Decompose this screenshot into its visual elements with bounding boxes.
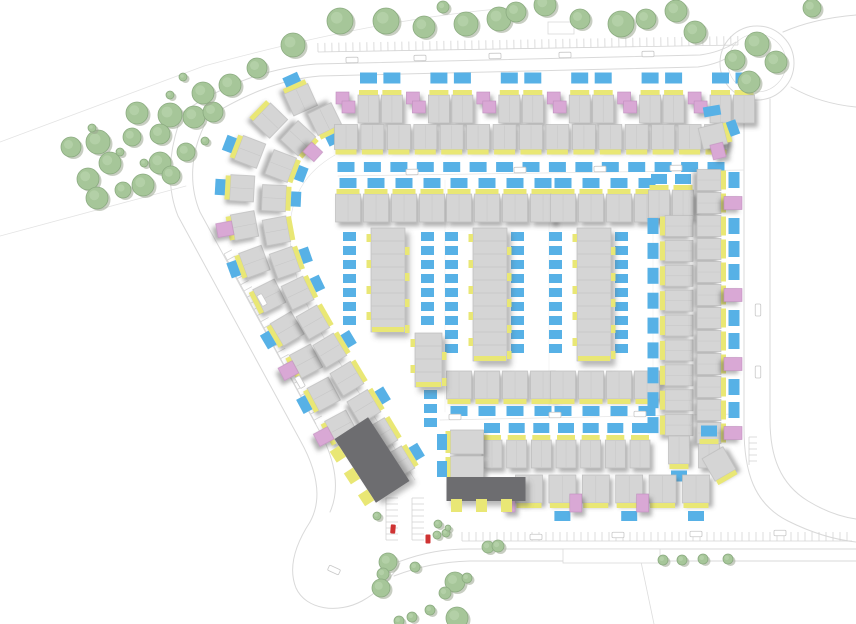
tree	[132, 174, 157, 198]
parking-space	[648, 318, 659, 334]
tree-highlight	[195, 85, 205, 95]
garden-strip	[521, 150, 542, 155]
tree	[407, 612, 420, 624]
east-outer-col-unit	[697, 377, 740, 398]
parking-space	[454, 73, 471, 84]
parking-space	[390, 162, 407, 172]
car	[449, 414, 461, 420]
tree-highlight	[441, 589, 446, 594]
south-mid-row-unit	[556, 423, 576, 468]
tree-highlight	[375, 582, 383, 590]
east-inner-col-unit	[648, 390, 694, 411]
entry-strip	[411, 365, 416, 373]
east-inner-col-unit	[648, 340, 694, 361]
garden-strip	[721, 217, 726, 236]
parking-space	[343, 232, 356, 241]
parking-space	[509, 423, 525, 433]
garden-strip	[608, 399, 631, 404]
garden-strip	[721, 309, 726, 328]
east-inner-col-unit	[648, 216, 694, 237]
maisonette-block	[637, 494, 649, 512]
entry-strip	[405, 299, 410, 307]
parking-space	[648, 417, 659, 433]
maisonette-block	[570, 494, 582, 512]
parking-space	[343, 316, 356, 325]
parking-space	[511, 302, 524, 311]
entry-strip	[367, 286, 372, 294]
tree	[61, 137, 84, 159]
parking-space	[421, 288, 434, 297]
arc-outer-row-unit	[220, 130, 266, 168]
entry-strip	[573, 312, 578, 320]
top-row-b-unit	[387, 125, 410, 173]
parking-space	[396, 178, 413, 188]
maisonette-block	[412, 101, 425, 113]
parking-space	[729, 310, 740, 326]
car	[549, 412, 561, 418]
tree-highlight	[152, 155, 162, 165]
parking-space	[484, 423, 500, 433]
tree	[123, 128, 144, 148]
parking-space	[445, 302, 458, 311]
garden-strip	[600, 150, 621, 155]
parking-space	[470, 162, 487, 172]
parking-space	[424, 390, 437, 399]
east-inner-col-unit	[648, 265, 694, 286]
house-block	[451, 456, 484, 478]
parking-space	[628, 162, 645, 172]
parking-space	[681, 162, 698, 172]
parking-space	[611, 178, 628, 188]
site-plan-svg	[0, 0, 856, 624]
top-row-a-unit	[477, 92, 496, 113]
tree-highlight	[167, 92, 171, 96]
top-row-b-unit	[625, 125, 648, 173]
tree	[434, 520, 445, 530]
top-row-b-unit	[440, 125, 463, 173]
parking-space	[343, 274, 356, 283]
parking-space	[549, 302, 562, 311]
top-row-a-unit	[381, 73, 402, 124]
parking-space	[507, 406, 524, 416]
arc-inner-row-unit	[269, 241, 314, 278]
east-outer-col-unit	[697, 193, 742, 214]
parking-bay-line	[261, 317, 269, 321]
garden-strip	[721, 263, 726, 282]
entry-strip	[367, 312, 372, 320]
parking-space	[621, 511, 637, 521]
south-mid-row-unit	[507, 423, 527, 468]
arc-outer-row-unit	[215, 211, 259, 244]
parking-space	[445, 316, 458, 325]
parking-space	[632, 423, 648, 433]
garden-strip	[650, 503, 675, 508]
parking-space	[648, 367, 659, 383]
entry-strip	[573, 286, 578, 294]
garden-strip	[382, 90, 401, 95]
garden-strip	[721, 401, 726, 420]
parking-space	[501, 73, 518, 84]
parking-space	[535, 178, 552, 188]
tree-highlight	[768, 54, 778, 64]
tree-highlight	[202, 138, 206, 142]
tree	[126, 102, 151, 126]
terrace-body	[415, 333, 442, 387]
parking-space	[533, 423, 549, 433]
entry-strip	[367, 260, 372, 268]
garden-strip	[500, 90, 519, 95]
parking-space	[615, 274, 628, 283]
terrace-body	[473, 228, 507, 361]
tree	[115, 182, 134, 200]
top-row-b-unit	[335, 125, 358, 173]
garden-strip	[532, 435, 550, 440]
parking-bay-line	[224, 250, 232, 254]
tree	[684, 21, 709, 45]
garden-strip	[721, 171, 726, 190]
terrace-block	[573, 228, 616, 361]
entry-strip	[469, 260, 474, 268]
garden-strip	[523, 90, 542, 95]
east-outer-col-unit	[697, 400, 740, 421]
tree	[658, 555, 671, 567]
garden-strip	[532, 189, 555, 194]
parking-space	[445, 246, 458, 255]
site-plan-canvas	[0, 0, 856, 624]
parking-space	[445, 232, 458, 241]
top-row-a-unit	[428, 73, 449, 124]
entry-strip	[573, 338, 578, 346]
tree-highlight	[117, 184, 124, 191]
top-row-b-unit	[414, 125, 437, 173]
tree-highlight	[117, 149, 121, 153]
parking-space	[571, 73, 588, 84]
tree-highlight	[153, 127, 162, 136]
parking-space	[595, 73, 612, 84]
tree-highlight	[396, 618, 401, 623]
parking-space	[343, 288, 356, 297]
garden-strip	[660, 416, 665, 435]
parking-space	[651, 174, 667, 184]
east-outer-col-unit	[697, 354, 742, 375]
tree-highlight	[285, 37, 296, 48]
parking-space	[511, 274, 524, 283]
tree	[372, 579, 393, 599]
entry-strip	[507, 273, 512, 281]
tree	[446, 607, 471, 624]
east-outer-col-unit	[697, 331, 740, 352]
east-top-pair-unit	[649, 174, 670, 218]
tree	[247, 58, 270, 80]
parking-space	[615, 344, 628, 353]
tree	[88, 124, 99, 134]
garden-strip	[552, 399, 575, 404]
parking-space	[451, 178, 468, 188]
entry-strip	[442, 378, 447, 386]
east-inner-col-unit	[648, 315, 694, 336]
parking-space	[615, 316, 628, 325]
entry-strip	[469, 338, 474, 346]
parking-space	[575, 162, 592, 172]
parking-space	[729, 402, 740, 418]
top-row-b-unit	[652, 125, 675, 173]
block3-bottom-row-unit	[579, 371, 604, 416]
tree-highlight	[741, 74, 751, 84]
garden-strip	[448, 399, 471, 404]
entry-strip	[611, 325, 616, 333]
house-unit	[437, 456, 484, 478]
tree-highlight	[89, 125, 93, 129]
tree-highlight	[409, 614, 414, 619]
garden-strip	[508, 435, 526, 440]
entry-strip	[451, 499, 462, 512]
parking-space	[688, 511, 704, 521]
car	[346, 57, 358, 63]
car	[755, 366, 761, 378]
tree-highlight	[186, 109, 196, 119]
parking-space	[343, 260, 356, 269]
tree-highlight	[412, 564, 417, 569]
garden-strip	[474, 356, 506, 361]
car	[774, 530, 786, 536]
parking-space	[524, 73, 541, 84]
garden-strip	[552, 189, 575, 194]
tree	[765, 51, 790, 75]
tree-highlight	[64, 140, 73, 149]
road-edge	[640, 557, 654, 624]
parking-space	[445, 288, 458, 297]
tree	[177, 143, 198, 163]
tree	[373, 512, 384, 522]
parking-space	[511, 246, 524, 255]
tree-highlight	[374, 513, 378, 517]
tree-highlight	[206, 105, 215, 114]
parking-space	[642, 73, 659, 84]
housing-layer	[214, 70, 754, 521]
block3-top-row-unit	[607, 178, 632, 222]
tree	[373, 8, 402, 36]
south-mid-row-unit	[605, 423, 625, 468]
south-mid-row-unit	[581, 423, 601, 468]
apartment-body	[447, 477, 526, 501]
garden-strip	[453, 90, 472, 95]
tree-highlight	[573, 12, 582, 21]
parking-space	[437, 461, 447, 477]
tree	[413, 16, 438, 40]
tree	[665, 0, 690, 24]
parking-space	[343, 246, 356, 255]
road-edge	[744, 99, 856, 542]
garden-strip	[700, 439, 719, 444]
tree-highlight	[509, 5, 518, 14]
road-edge	[783, 15, 856, 32]
tree	[179, 73, 190, 83]
garden-strip	[416, 382, 441, 387]
garden-strip	[674, 185, 693, 190]
arc-inner-row-unit	[261, 185, 301, 213]
parking-space	[648, 293, 659, 309]
parking-space	[648, 268, 659, 284]
garden-strip	[660, 391, 665, 410]
garden-strip	[517, 503, 542, 508]
tree-highlight	[80, 171, 90, 181]
car-red	[390, 524, 396, 533]
parking-space	[511, 330, 524, 339]
arc-outer-row-unit	[249, 99, 288, 138]
tree-highlight	[141, 160, 145, 164]
top-row-a-unit	[640, 73, 661, 124]
tree-highlight	[439, 3, 444, 8]
arc-inner-row-unit	[281, 270, 327, 310]
parking-space	[215, 179, 226, 196]
garden-strip	[547, 150, 568, 155]
garden-strip	[573, 150, 594, 155]
tree-highlight	[89, 190, 99, 200]
parking-space	[729, 218, 740, 234]
terrace-block	[367, 228, 410, 333]
top-row-b-unit	[467, 125, 490, 173]
east-top-pair-unit	[673, 174, 694, 218]
east-inner-col-unit	[648, 240, 694, 261]
tree	[698, 554, 711, 566]
tree-highlight	[806, 2, 814, 10]
tree-highlight	[679, 557, 684, 562]
parking-space	[340, 178, 357, 188]
entry-strip	[367, 234, 372, 242]
top-row-b-unit	[678, 125, 701, 173]
parking-space	[729, 241, 740, 257]
entry-strip	[507, 247, 512, 255]
garden-strip	[721, 332, 726, 351]
east-outer-col-unit	[697, 216, 740, 237]
maisonette-block	[724, 289, 742, 302]
parking-space	[360, 73, 377, 84]
parking-space	[549, 274, 562, 283]
car	[406, 169, 418, 175]
garden-strip	[580, 399, 603, 404]
car	[530, 534, 542, 540]
entry-strip	[442, 352, 447, 360]
parking-space	[549, 288, 562, 297]
parking-space	[615, 330, 628, 339]
top-row-a-unit	[499, 73, 520, 124]
parking-space	[583, 178, 600, 188]
tree-highlight	[135, 177, 145, 187]
garden-strip	[429, 90, 448, 95]
garden-strip	[415, 150, 436, 155]
entry-strip	[411, 339, 416, 347]
garden-strip	[660, 316, 665, 335]
block1-top-row-unit	[392, 178, 417, 222]
parking-space	[729, 172, 740, 188]
block2-bottom-row-unit	[447, 371, 472, 416]
east-inner-col-unit	[648, 290, 694, 311]
parking-space	[421, 260, 434, 269]
block3-top-row-unit	[579, 178, 604, 222]
road-edge	[791, 87, 856, 107]
entry-strip	[476, 499, 487, 512]
tree-highlight	[435, 521, 439, 525]
parking-space	[555, 178, 572, 188]
tree-highlight	[639, 12, 648, 21]
garden-strip	[660, 217, 665, 236]
tree	[454, 12, 481, 38]
garden-strip	[476, 399, 499, 404]
garden-strip	[721, 378, 726, 397]
garden-strip	[578, 356, 610, 361]
parking-space	[558, 423, 574, 433]
parking-space	[421, 246, 434, 255]
garden-strip	[483, 435, 501, 440]
tree-highlight	[129, 105, 139, 115]
terrace-block	[411, 333, 447, 387]
garden-strip	[631, 435, 649, 440]
parking-space	[479, 406, 496, 416]
garden-strip	[365, 189, 388, 194]
parking-space	[729, 379, 740, 395]
tree-highlight	[612, 15, 624, 27]
east-inner-col-unit	[648, 415, 694, 436]
east-outer-col-unit	[697, 170, 740, 191]
top-row-a-unit	[452, 73, 473, 124]
parking-space	[675, 174, 691, 184]
entry-strip	[405, 247, 410, 255]
top-row-a-unit	[618, 92, 637, 113]
tree-highlight	[126, 131, 134, 139]
block3-top-row-unit	[551, 178, 576, 222]
entry-strip	[469, 286, 474, 294]
block1-top-row-unit	[420, 178, 445, 222]
garden-strip	[684, 503, 709, 508]
south-mid-row-unit	[531, 423, 551, 468]
parking-space	[364, 162, 381, 172]
block2-bottom-row-unit	[503, 371, 528, 416]
parking-space	[445, 330, 458, 339]
tree	[677, 555, 690, 567]
tree-highlight	[728, 53, 737, 62]
parking-space	[507, 178, 524, 188]
tree-highlight	[434, 532, 438, 536]
parking-space	[729, 333, 740, 349]
maisonette-block	[342, 101, 355, 113]
tree	[86, 187, 111, 211]
tree-highlight	[668, 3, 678, 13]
tree-highlight	[180, 146, 188, 154]
parking-space	[655, 162, 672, 172]
parking-space	[607, 423, 623, 433]
parking-space	[445, 260, 458, 269]
parking-space	[430, 73, 447, 84]
entry-strip	[507, 351, 512, 359]
arc-outer-row-unit	[214, 174, 254, 202]
tree-highlight	[162, 107, 173, 118]
parking-space	[424, 418, 437, 427]
parking-space	[511, 260, 524, 269]
tree	[437, 1, 452, 15]
garden-strip	[337, 189, 360, 194]
parking-space	[421, 316, 434, 325]
car-red	[426, 535, 431, 544]
south-mid-row-unit	[630, 423, 650, 468]
tree	[219, 74, 244, 98]
arc-inner-row-unit	[262, 215, 295, 246]
parking-space	[424, 404, 437, 413]
garden-strip	[660, 366, 665, 385]
house-block	[451, 430, 484, 454]
garden-strip	[421, 189, 444, 194]
garden-strip	[660, 341, 665, 360]
parking-space	[549, 260, 562, 269]
